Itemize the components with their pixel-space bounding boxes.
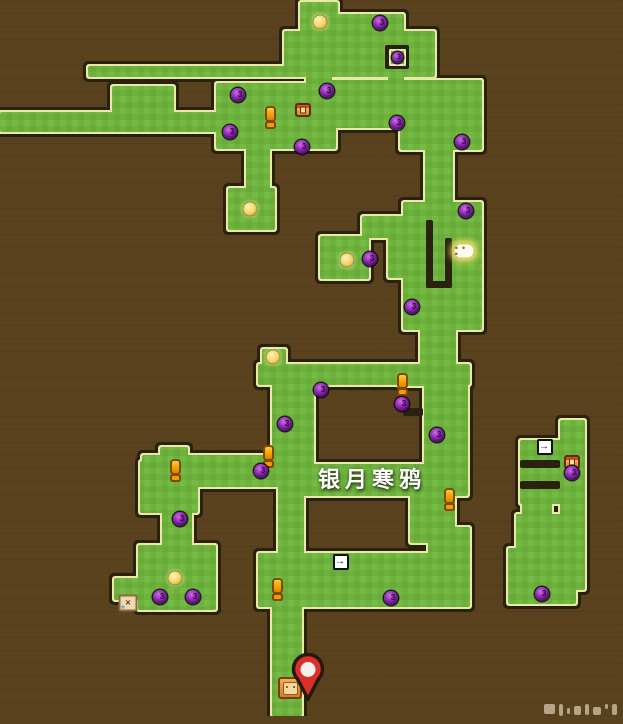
icon-glyph: → (539, 442, 549, 452)
enemy-orb-icon: 3 (373, 16, 387, 30)
enemy-orb-framed-icon: 3 (385, 45, 409, 69)
coin-icon (169, 572, 182, 585)
orb-frame: 3 (389, 49, 406, 66)
pin-shape (286, 651, 330, 701)
enemy-orb-icon: 3 (186, 590, 200, 604)
enemy-orb-icon: 3 (295, 140, 309, 154)
exclaim-icon (398, 375, 406, 395)
exclaim-icon (266, 108, 274, 128)
enemy-orb-icon: 3 (254, 464, 268, 478)
icon-glyph: ● ● ● (455, 245, 474, 257)
enemy-level-text: 3 (466, 207, 470, 215)
enemy-orb-icon: 3 (231, 88, 245, 102)
enemy-orb-icon: 3 (455, 135, 469, 149)
enemy-level-text: 3 (230, 128, 234, 136)
enemy-level-text: 3 (193, 593, 197, 601)
watermark (544, 704, 617, 724)
enemy-orb-icon: 3 (395, 397, 409, 411)
enemy-orb-icon: 3 (320, 84, 334, 98)
enemy-orb-icon: 3 (384, 591, 398, 605)
enemy-orb-icon: 3 (173, 512, 187, 526)
chest-icon (295, 103, 311, 117)
enemy-level-text: 3 (321, 386, 325, 394)
bubble-icon: ● ● ● (454, 244, 475, 259)
enemy-level-text: 3 (572, 469, 576, 477)
enemy-level-text: 3 (397, 119, 401, 127)
exclaim-icon (264, 447, 272, 467)
enemy-level-text: 3 (327, 87, 331, 95)
enemy-level-text: 3 (437, 431, 441, 439)
coin-icon (341, 254, 354, 267)
enemy-level-text: 3 (261, 467, 265, 475)
enemy-orb-icon: 3 (535, 587, 549, 601)
icon-glyph: → (335, 557, 345, 567)
enemy-level-text: 3 (370, 255, 374, 263)
enemy-level-text: 3 (285, 420, 289, 428)
enemy-level-text: 3 (160, 593, 164, 601)
enemy-orb-icon: 3 (430, 428, 444, 442)
enemy-level-text: 3 (180, 515, 184, 523)
enemy-level-text: 3 (302, 143, 306, 151)
enemy-level-text: 3 (238, 91, 242, 99)
enemy-orb-icon: 3 (278, 417, 292, 431)
enemy-orb-icon: 3 (405, 300, 419, 314)
enemy-orb-icon: 3 (565, 466, 579, 480)
exclaim-icon (171, 461, 179, 481)
map-canvas[interactable]: 3333333333● ● ●3333333×33→3→33 银月寒鸦 (0, 0, 623, 716)
enemy-level-text: 3 (412, 303, 416, 311)
door-icon: → (537, 439, 553, 455)
enemy-level-text: 3 (462, 138, 466, 146)
enemy-level-text: 3 (397, 54, 401, 61)
enemy-orb-icon: 3 (314, 383, 328, 397)
door-icon: → (333, 554, 349, 570)
enemy-orb-icon: 3 (153, 590, 167, 604)
enemy-level-text: 3 (380, 19, 384, 27)
enemy-level-text: 3 (402, 400, 406, 408)
enemy-orb-icon: 3 (363, 252, 377, 266)
enemy-level-text: 3 (391, 594, 395, 602)
area-name-label: 银月寒鸦 (318, 462, 426, 494)
enemy-level-text: 3 (542, 590, 546, 598)
enemy-orb-icon: 3 (390, 116, 404, 130)
exclaim-icon (273, 580, 281, 600)
chest-lock (300, 106, 306, 113)
enemy-orb-icon: 3 (223, 125, 237, 139)
letter-icon: × (119, 595, 138, 612)
chest-lock (569, 458, 575, 465)
enemy-orb-icon: 3 (459, 204, 473, 218)
icon-glyph: × (125, 599, 130, 608)
coin-icon (244, 203, 257, 216)
enemy-orb-core: 3 (392, 52, 403, 63)
coin-icon (267, 351, 280, 364)
exclaim-icon (445, 490, 453, 510)
coin-icon (314, 16, 327, 29)
map-icon-layer: 3333333333● ● ●3333333×33→3→33 (0, 0, 623, 716)
